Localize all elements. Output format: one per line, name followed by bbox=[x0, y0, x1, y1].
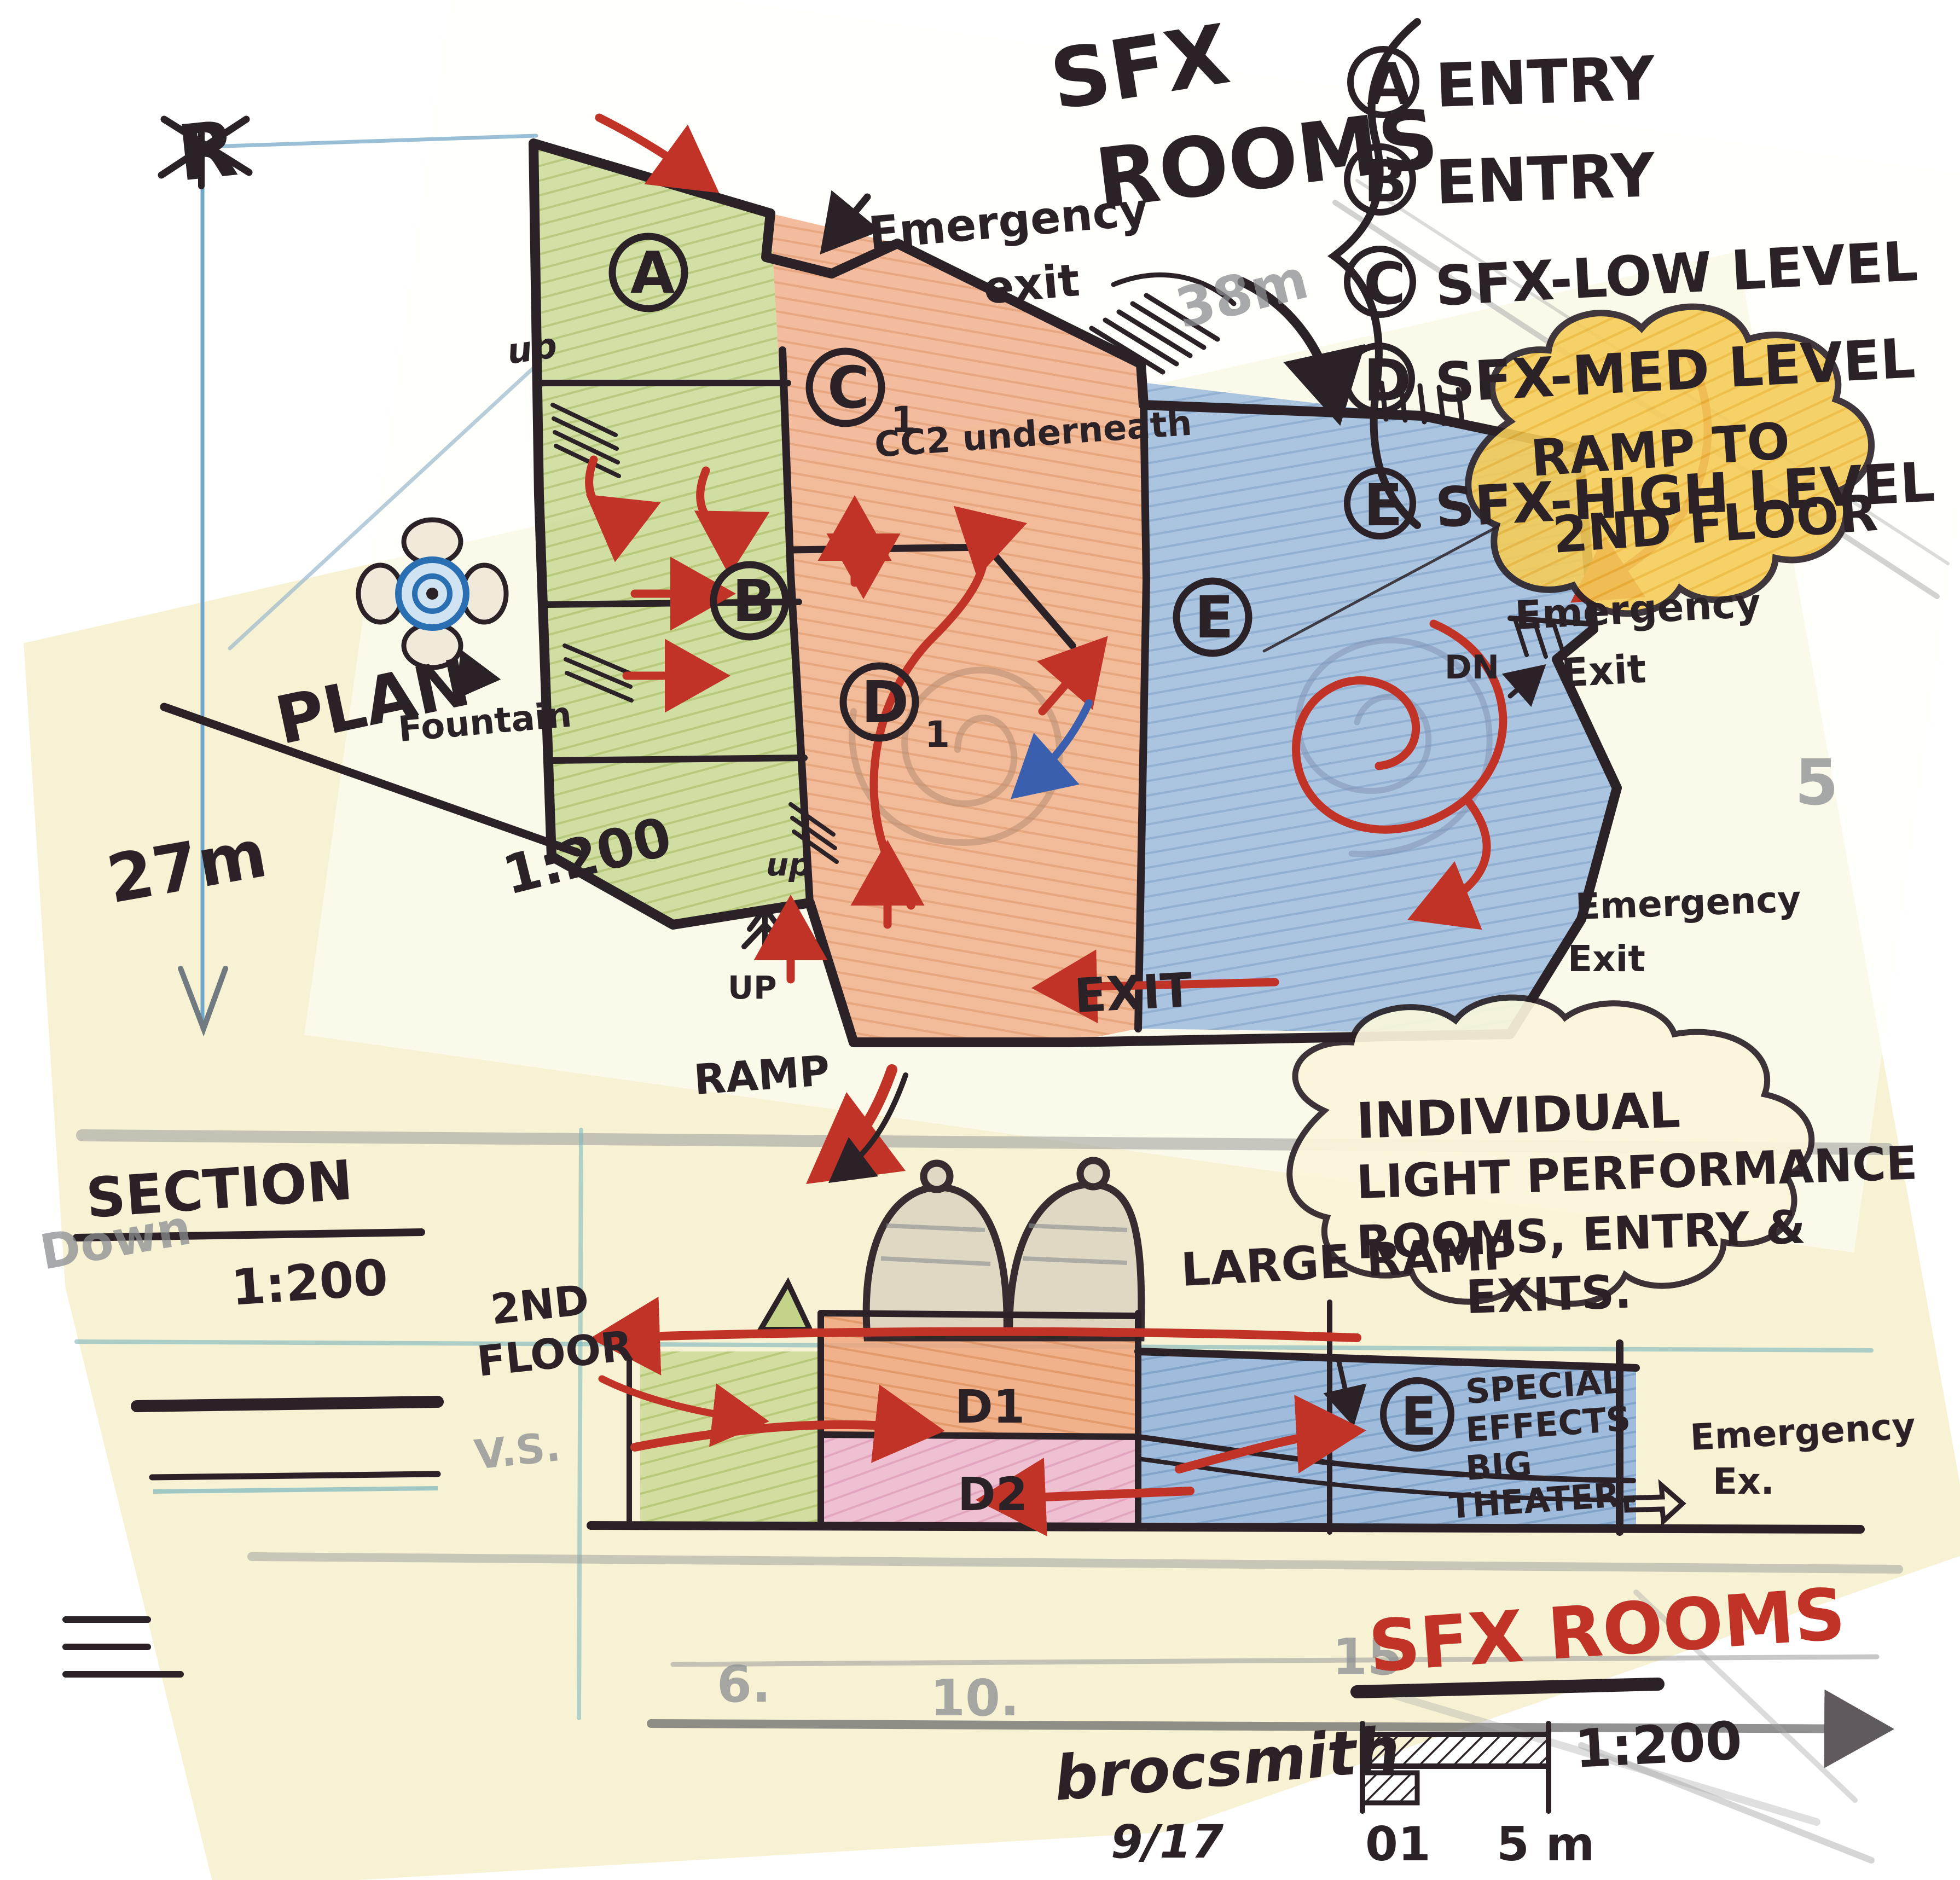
pencil-38m: 38m bbox=[1170, 247, 1314, 341]
dimension-27m: 27m bbox=[102, 816, 272, 919]
ramp-label: RAMP bbox=[692, 1046, 831, 1104]
room-e-label: E bbox=[1194, 584, 1234, 651]
exit-label: EXIT bbox=[1073, 963, 1194, 1024]
notes-line1: INDIVIDUAL bbox=[1355, 1081, 1681, 1150]
legend-key-d: D bbox=[1364, 347, 1411, 414]
legend-item-b: B ENTRY bbox=[1347, 140, 1657, 218]
sketch-page: SFX ROOMS 38m A ENTRY B ENTRY C SFX bbox=[0, 0, 1960, 1880]
titleblock-zero-one: 01 bbox=[1365, 1817, 1431, 1872]
legend-label-b: ENTRY bbox=[1434, 140, 1656, 218]
room-b-label: B bbox=[732, 568, 776, 635]
legend-key-a: A bbox=[1367, 51, 1411, 118]
signature-date: 9/17 bbox=[1111, 1815, 1224, 1869]
legend-item-a: A ENTRY bbox=[1350, 43, 1657, 121]
north-mark: R bbox=[173, 104, 241, 199]
titleblock-five-m: 5 m bbox=[1497, 1817, 1594, 1872]
room-c-label: C bbox=[827, 355, 869, 421]
sketch-canvas: SFX ROOMS 38m A ENTRY B ENTRY C SFX bbox=[0, 0, 1960, 1880]
legend-key-b: B bbox=[1364, 148, 1407, 215]
emergency-right-2: Exit bbox=[1560, 646, 1647, 696]
emergency-exit-top-2: exit bbox=[981, 254, 1081, 315]
section-e: E bbox=[1401, 1386, 1437, 1447]
pencil-down: Down bbox=[36, 1199, 195, 1281]
section-d1: D1 bbox=[955, 1380, 1025, 1434]
up-label-c: UP bbox=[728, 969, 777, 1006]
titleblock-scale: 1:200 bbox=[1573, 1710, 1743, 1780]
pencil-5: 5 bbox=[1795, 746, 1839, 820]
pencil-tick-10: 10. bbox=[930, 1669, 1019, 1727]
emergency-lower-2: Exit bbox=[1568, 938, 1645, 980]
emergency-exit-top-1: Emergency bbox=[866, 184, 1150, 260]
pencil-tick-6: 6. bbox=[717, 1655, 771, 1714]
up-label-a: up bbox=[505, 326, 560, 373]
section-scale: 1:200 bbox=[229, 1249, 390, 1317]
legend-item-c: C SFX-LOW LEVEL bbox=[1347, 229, 1920, 318]
page-title-line1: SFX bbox=[1044, 7, 1235, 129]
dn-label: DN bbox=[1445, 648, 1499, 687]
room-d-sub: 1 bbox=[925, 713, 950, 756]
legend-key-c: C bbox=[1364, 251, 1406, 317]
pencil-vs: V.S. bbox=[472, 1423, 563, 1479]
section-d2: D2 bbox=[958, 1467, 1028, 1521]
emergency-ex-2: Ex. bbox=[1713, 1460, 1775, 1502]
second-floor-1: 2ND bbox=[489, 1275, 592, 1334]
room-a-label: A bbox=[630, 240, 675, 306]
up-label-b: up bbox=[766, 846, 811, 883]
emergency-ex-1: Emergency bbox=[1689, 1405, 1917, 1459]
legend-label-a: ENTRY bbox=[1434, 43, 1656, 121]
legend-label-c: SFX-LOW LEVEL bbox=[1434, 229, 1919, 318]
titleblock-title: SFX ROOMS bbox=[1366, 1572, 1848, 1688]
legend-key-e: E bbox=[1364, 472, 1403, 539]
emergency-lower-1: Emergency bbox=[1575, 878, 1802, 928]
